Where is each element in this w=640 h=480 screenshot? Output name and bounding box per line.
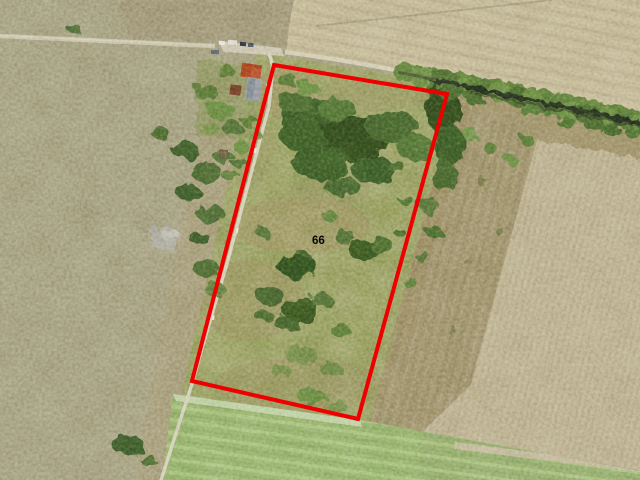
svg-text:66: 66 [312, 235, 325, 247]
